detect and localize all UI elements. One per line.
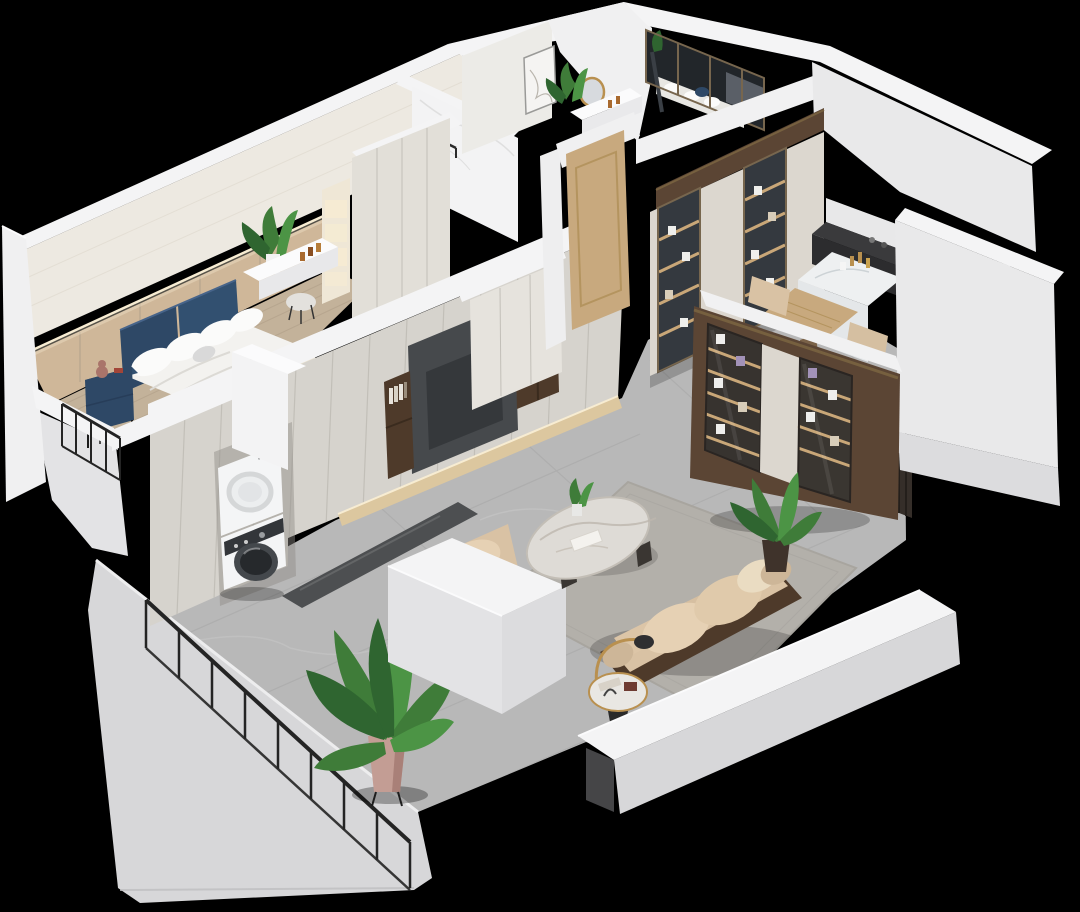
lamp-shade	[634, 635, 654, 649]
gold-bottle	[858, 252, 862, 263]
apartment-isometric-render	[0, 0, 1080, 912]
glass-door	[798, 358, 852, 502]
gold-bottle	[850, 256, 854, 266]
glass-door	[705, 324, 762, 472]
screenshot-root	[0, 0, 1080, 912]
gold-bottle	[866, 258, 870, 268]
walnut-shelf-left	[384, 371, 414, 479]
wall-art	[524, 46, 556, 114]
cabinet-door	[760, 344, 800, 486]
